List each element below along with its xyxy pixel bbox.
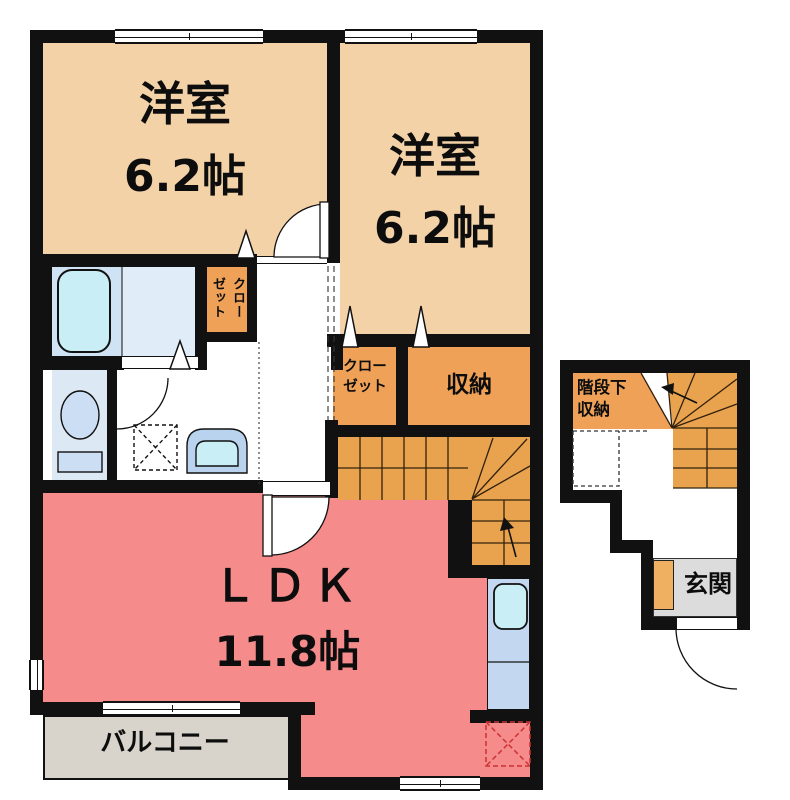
floor-plan: 洋室 6.2帖 洋室 6.2帖 クロー ゼット クロー ゼット 収納 ＬＤＫ 1… <box>0 0 790 800</box>
under-stairs-storage-label: 階段下 収納 <box>577 377 662 421</box>
bedroom1-size: 6.2帖 <box>85 152 285 203</box>
kitchen-sink-icon <box>494 584 527 629</box>
ldk-name: ＬＤＫ <box>175 562 400 613</box>
storage-label: 収納 <box>408 372 530 398</box>
bedroom2-name: 洋室 <box>335 130 535 183</box>
washbasin-icon <box>187 429 247 473</box>
closet2-label: クロー ゼット <box>335 357 395 397</box>
bedroom1-name: 洋室 <box>85 78 285 131</box>
toilet-icon <box>58 391 102 472</box>
bedroom2-size: 6.2帖 <box>335 204 535 255</box>
stairs-icon <box>338 437 530 565</box>
corridor-tracks <box>259 266 334 484</box>
closet1-label: クロー ゼット <box>207 266 247 330</box>
refrigerator-space-icon <box>486 722 530 766</box>
balcony-label: バルコニー <box>50 729 280 759</box>
bathtub-icon <box>58 270 110 352</box>
ldk-size: 11.8帖 <box>175 628 400 676</box>
entrance-label: 玄関 <box>676 571 740 599</box>
washing-machine-pan-icon <box>134 425 177 470</box>
